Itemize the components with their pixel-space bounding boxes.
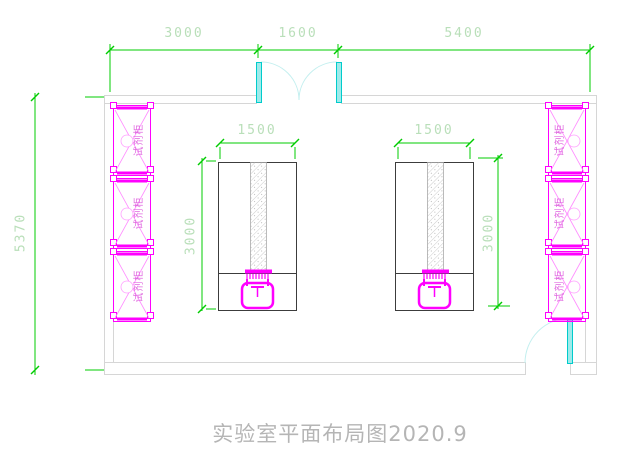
door-leaf-left [257,63,262,103]
lab-bench-right [396,163,474,311]
drawing-title: 实验室平面布局图2020.9 [0,418,619,448]
cabinet-label: 试剂柜 [134,118,146,162]
cabinet-label: 试剂柜 [555,191,567,235]
dimension-lines [31,44,594,375]
dim-label-bench-left-width: 1500 [227,123,287,138]
reagent-cabinet [546,176,589,249]
cabinet-column-left [111,103,154,322]
reagent-cabinet [546,249,589,322]
plan-geometry [0,0,619,469]
cabinet-label: 试剂柜 [134,264,146,308]
cabinet-column-right [546,103,589,322]
reagent-cabinet [111,249,154,322]
single-door-bottom [525,318,573,364]
bench-shelf-strip [428,163,444,274]
door-leaf-right [337,63,342,103]
cabinet-label: 试剂柜 [555,264,567,308]
reagent-cabinet [111,103,154,176]
dim-label-top-1600: 1600 [268,26,328,41]
dim-label-top-3000: 3000 [154,26,214,41]
dim-label-left-5370: 5370 [14,203,29,263]
dim-label-bench-right-width: 1500 [404,123,464,138]
double-door-top [257,62,342,103]
door-leaf [568,319,573,364]
walls [105,96,597,375]
reagent-cabinet [546,103,589,176]
cabinet-label: 试剂柜 [134,191,146,235]
dim-label-bench-right-depth: 3000 [482,203,497,263]
reagent-cabinet [111,176,154,249]
dim-label-bench-left-depth: 3000 [184,206,199,266]
floor-plan-drawing: 3000 1600 5400 5370 1500 1500 3000 3000 … [0,0,619,469]
lab-bench-left [219,163,297,311]
cabinet-label: 试剂柜 [555,118,567,162]
bench-shelf-strip [251,163,267,274]
dim-label-top-5400: 5400 [434,26,494,41]
